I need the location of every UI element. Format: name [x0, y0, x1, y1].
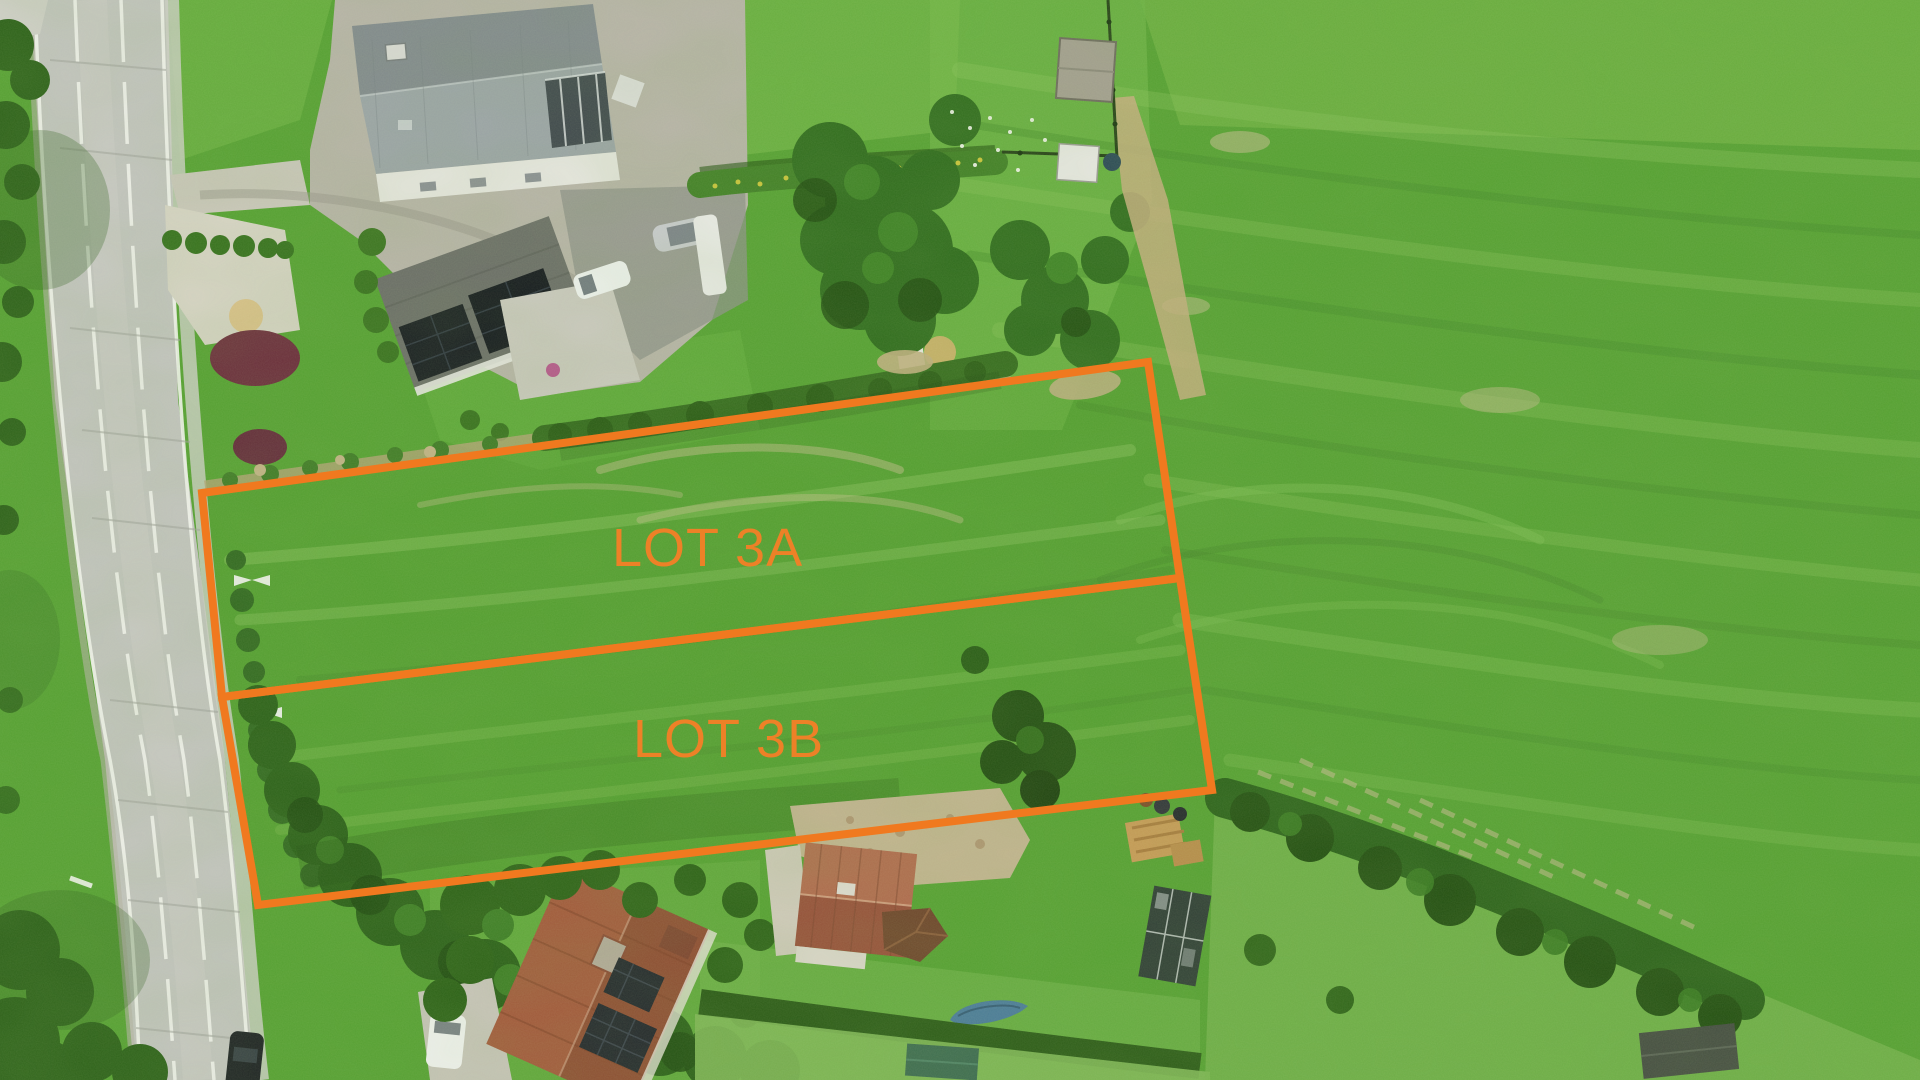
lot-3b-label: LOT 3B: [633, 709, 824, 769]
texture-grain: [0, 0, 1920, 1080]
aerial-photo: LOT 3A LOT 3B: [0, 0, 1920, 1080]
aerial-photo-canvas: LOT 3A LOT 3B: [0, 0, 1920, 1080]
lot-3a-label: LOT 3A: [612, 518, 803, 578]
